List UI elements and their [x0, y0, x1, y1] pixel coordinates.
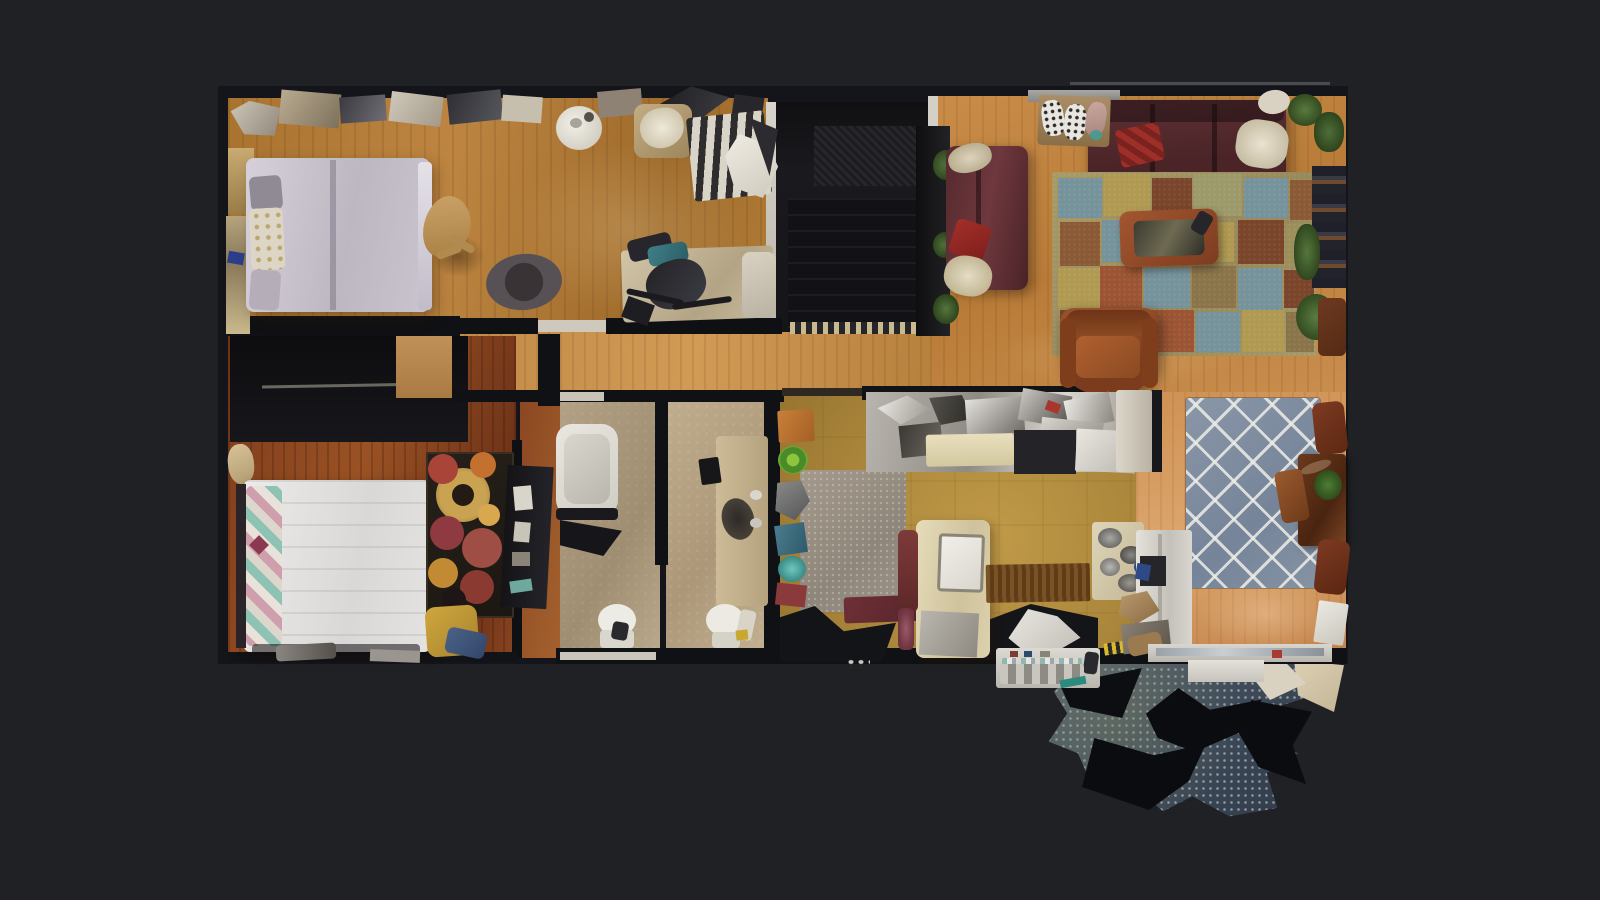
- plant-left-3: [933, 294, 959, 324]
- top-edge-line: [1070, 82, 1330, 85]
- maroon-item: [898, 608, 914, 650]
- rug-circle-maroon: [430, 516, 464, 550]
- wall-bedroom1-south-2: [460, 318, 538, 334]
- bed-1-pillow-gray: [249, 175, 284, 212]
- rug-circle-gold: [428, 558, 458, 588]
- floor-clutter-2: [370, 649, 420, 663]
- pot-3: [1100, 558, 1120, 576]
- sofa-seam-2: [1212, 104, 1217, 180]
- stool-maroon: [898, 530, 918, 612]
- sliding-door-glass: [1156, 648, 1324, 656]
- floor-clutter: [276, 642, 337, 661]
- dining-chair: [1311, 400, 1348, 455]
- closet-door: [396, 332, 452, 398]
- closet-clutter-5: [447, 89, 504, 124]
- island-gray-box: [919, 611, 979, 658]
- red-bin: [775, 582, 807, 607]
- bathtub-basin: [564, 434, 610, 504]
- cabinet-blue-item: [1135, 563, 1152, 581]
- wall-bedroom1-south: [228, 316, 460, 336]
- blue-cloth: [227, 251, 245, 266]
- fridge: [1116, 390, 1152, 472]
- teal-bowl: [778, 556, 806, 582]
- armchair-back: [1066, 310, 1152, 336]
- dish-item: [1010, 651, 1018, 657]
- dish-item-2: [1024, 651, 1032, 657]
- dresser-item-2: [513, 521, 531, 542]
- wall-bath-divider: [655, 400, 668, 565]
- armchair-seat: [1076, 336, 1140, 378]
- vanity-faucet: [750, 490, 762, 500]
- door-red-mark: [1272, 650, 1282, 658]
- paper-box: [1313, 600, 1349, 646]
- closet-clutter-3: [339, 94, 387, 123]
- bed-1-pillow-lower: [249, 269, 282, 311]
- rug-circle-orange: [470, 452, 496, 478]
- counter-inset-dark: [1014, 430, 1076, 474]
- door-sill-bathroom: [556, 392, 604, 401]
- dish-item-3: [1040, 651, 1050, 657]
- stove-cream: [926, 433, 1015, 467]
- stairwell-rug: [814, 126, 916, 186]
- threshold-kitchen: [782, 388, 862, 396]
- armchair-arm: [1060, 318, 1076, 388]
- wall-bath-join: [538, 334, 560, 406]
- bed-2-headboard: [236, 484, 246, 648]
- stair-bottom-gate: [790, 322, 918, 334]
- patio-stone-fragment: [1294, 660, 1344, 712]
- brown-mat: [986, 563, 1091, 603]
- bed-1-pillow-pattern: [248, 207, 285, 271]
- door-leaf: [1188, 660, 1264, 682]
- floor-marking: [846, 658, 870, 668]
- rug-circle-rose: [462, 528, 502, 568]
- wall-hall-south: [452, 390, 784, 402]
- door-sill-bedroom2: [538, 320, 606, 332]
- dresser-item: [513, 485, 533, 510]
- pot: [1098, 528, 1122, 548]
- stair-steps: [788, 198, 920, 330]
- table-item-2: [584, 112, 594, 122]
- bathtub-edge: [556, 508, 618, 520]
- side-table-round: [556, 106, 602, 150]
- door-sill-south: [560, 652, 656, 660]
- table-item: [570, 118, 582, 128]
- vanity-soap: [750, 518, 762, 528]
- rug-circle-small-gold: [478, 504, 500, 526]
- rug-circle-dark: [452, 484, 474, 506]
- hallway-floor: [452, 330, 942, 392]
- green-bowl: [778, 446, 808, 474]
- bed-1-fold: [330, 160, 336, 310]
- cutting-board: [777, 409, 815, 443]
- island-tray: [937, 533, 985, 593]
- floorplan-view[interactable]: [0, 0, 1600, 900]
- blue-bin: [774, 522, 808, 556]
- dining-chair-2: [1313, 538, 1350, 595]
- side-table-right: [1318, 298, 1346, 356]
- vanity-dark-item: [698, 457, 721, 486]
- plant-top-right-2: [1314, 112, 1344, 152]
- plush-teal: [1090, 130, 1102, 140]
- table-plant: [1314, 470, 1342, 500]
- dresser-item-3: [512, 552, 530, 566]
- armchair-arm-2: [1142, 318, 1158, 388]
- closet-clutter-4: [388, 91, 443, 127]
- rug-circle-red: [428, 454, 458, 484]
- side-chair-beige: [742, 252, 776, 318]
- closet-clutter-2: [279, 89, 342, 128]
- kitchen-gray-floor: [800, 470, 906, 612]
- bath-item-yellow: [736, 629, 749, 640]
- toilet-seat-item: [611, 621, 630, 642]
- wall-kitchen-dining: [1152, 390, 1162, 472]
- plant-mid-right: [1294, 224, 1320, 280]
- closet-clutter-6: [501, 95, 543, 124]
- bed-2-pillows: [246, 486, 282, 646]
